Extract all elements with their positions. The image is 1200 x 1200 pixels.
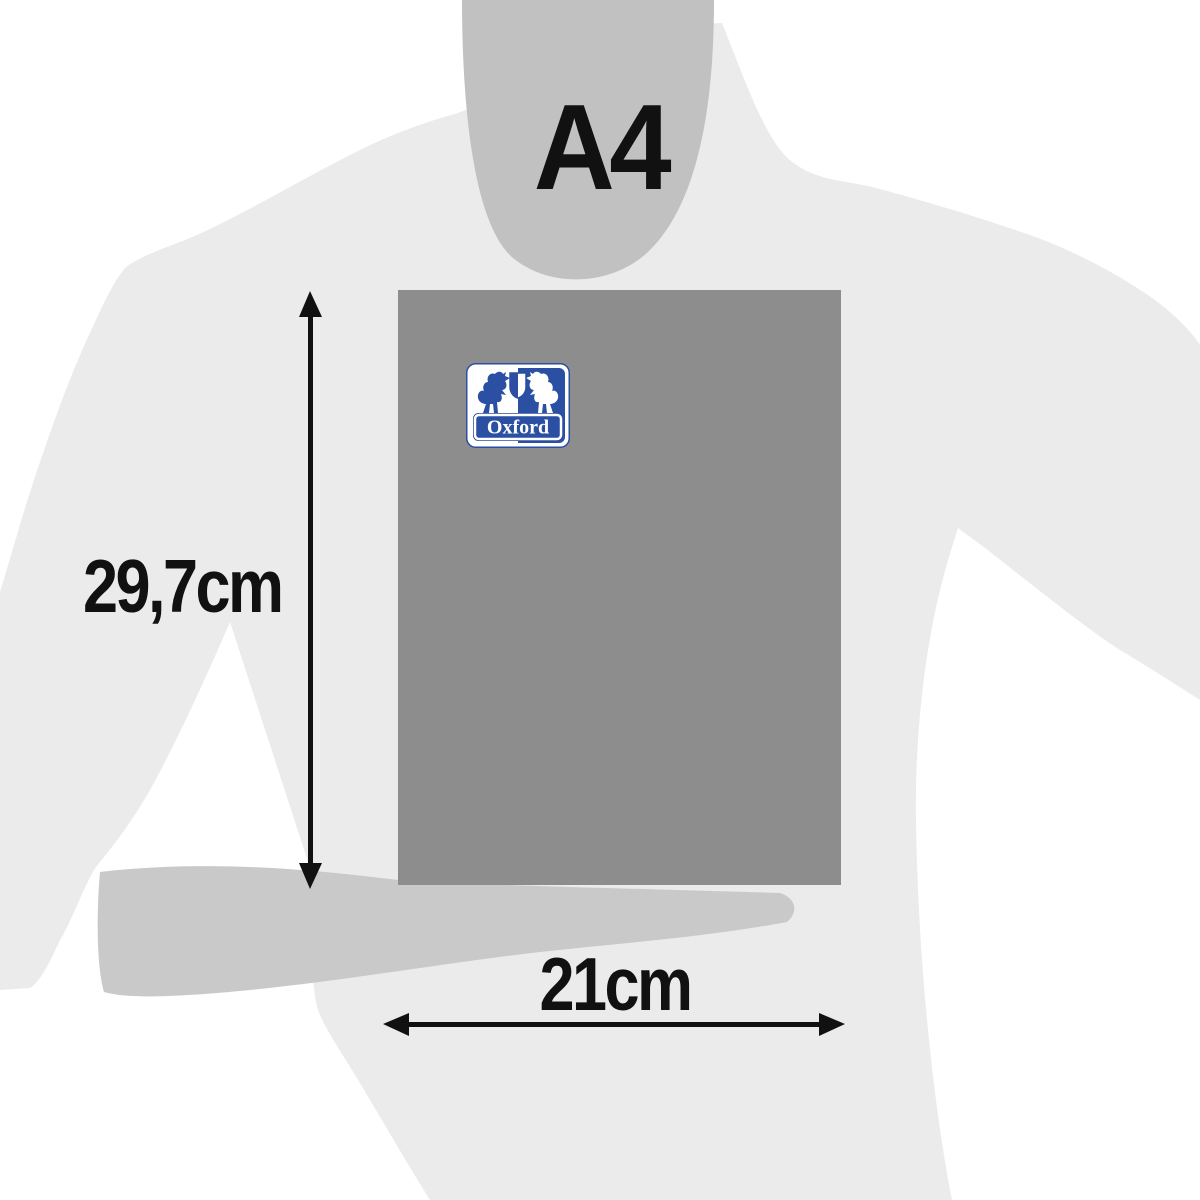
height-label: 29,7cm xyxy=(83,549,282,624)
oxford-logo: Oxford xyxy=(466,363,570,448)
product-dimension-figure: Oxford A4 29,7cm 21cm xyxy=(0,0,1200,1200)
size-label: A4 xyxy=(444,86,757,208)
brand-text: Oxford xyxy=(487,417,549,439)
notebook-cover: Oxford xyxy=(398,290,841,885)
width-label: 21cm xyxy=(514,947,716,1022)
